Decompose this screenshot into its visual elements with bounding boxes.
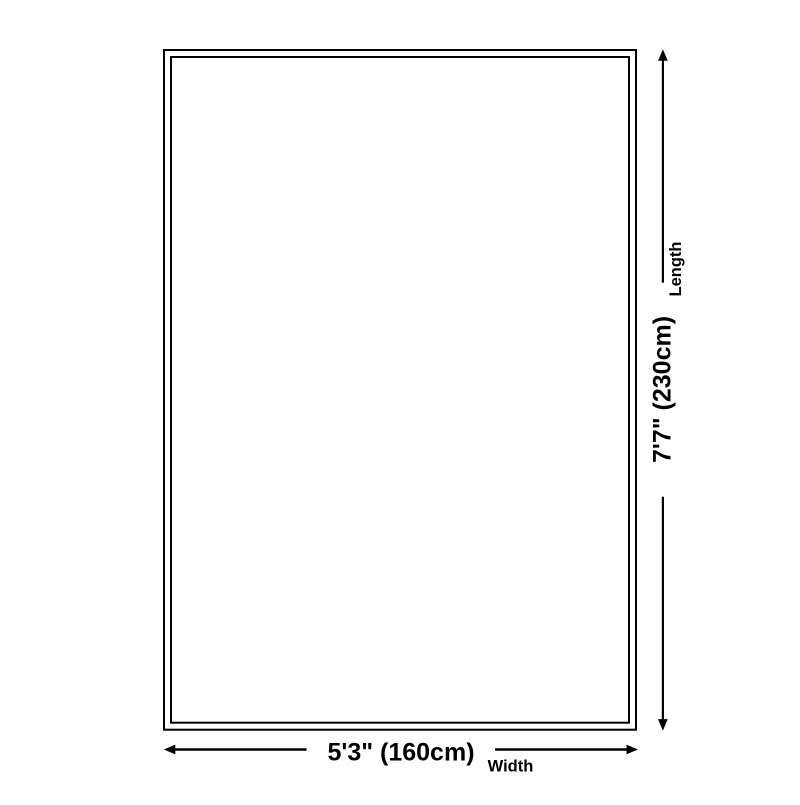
svg-text:Width: Width bbox=[488, 758, 534, 776]
svg-text:7'7" (230cm): 7'7" (230cm) bbox=[648, 316, 676, 463]
svg-text:5'3" (160cm): 5'3" (160cm) bbox=[327, 739, 474, 767]
svg-text:Length: Length bbox=[667, 242, 685, 297]
